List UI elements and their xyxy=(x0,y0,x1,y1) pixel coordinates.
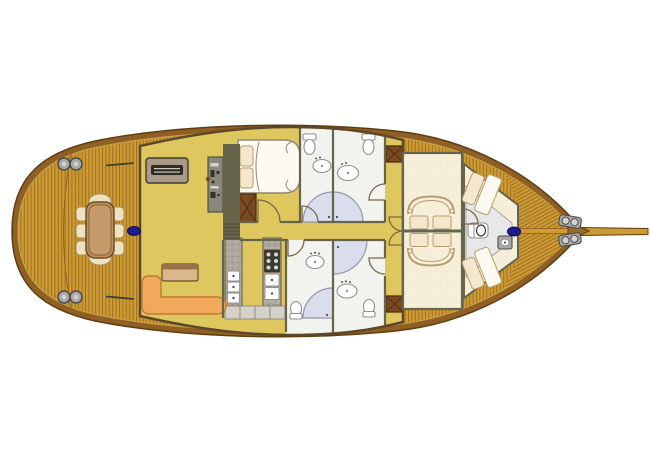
faucet-dot xyxy=(310,253,312,255)
footboard-scroll xyxy=(408,249,412,253)
toilet-bottom-left xyxy=(290,302,302,320)
bulkhead-column xyxy=(223,144,240,240)
deckhouse-interior xyxy=(140,125,403,336)
galley-base-cabinets xyxy=(225,306,285,319)
toilet-bowl xyxy=(477,225,486,236)
console-mark xyxy=(211,170,215,177)
console-dial xyxy=(217,194,220,197)
sink-drain xyxy=(314,261,316,263)
winch-center xyxy=(62,162,67,167)
fore-cabins xyxy=(403,153,462,309)
burner-knob xyxy=(267,253,271,257)
cabinet-top-band xyxy=(162,264,198,270)
salon-sideboard xyxy=(146,158,188,183)
burner-knob xyxy=(267,266,271,270)
drawer-knob xyxy=(232,275,234,277)
base-cabinet xyxy=(255,306,270,319)
crew-toilet xyxy=(468,223,488,238)
pillow xyxy=(240,168,253,188)
shower-door-knob xyxy=(336,216,338,218)
toilet-bottom-right xyxy=(363,300,375,318)
burner-knob xyxy=(267,259,271,263)
console-mark xyxy=(211,192,216,198)
console-mark xyxy=(211,163,219,167)
drawer-knob xyxy=(232,297,234,299)
toilet-bowl xyxy=(304,140,315,155)
toilet-tank xyxy=(363,312,375,318)
vent-slat xyxy=(154,172,180,173)
shower-door-knob xyxy=(326,314,328,316)
bowsprit xyxy=(581,228,648,236)
faucet-dot xyxy=(315,158,317,160)
winch-center xyxy=(74,162,79,167)
deck-plan-stage xyxy=(0,0,650,459)
midship-wardrobe xyxy=(238,194,256,222)
shower-door-knob xyxy=(337,246,339,248)
faucet-dot xyxy=(318,253,320,255)
winch-center xyxy=(74,295,79,300)
salon-cabinet xyxy=(162,264,198,281)
drawer-knob xyxy=(232,286,234,288)
pillow xyxy=(410,216,428,229)
corridor-wardrobe-top xyxy=(386,146,403,162)
footboard-scroll xyxy=(450,209,454,213)
sink-drain xyxy=(504,242,506,244)
faucet-dot xyxy=(314,252,316,254)
pillow xyxy=(410,234,428,247)
sink-drain xyxy=(346,290,348,292)
footboard-scroll xyxy=(450,249,454,253)
console-mark xyxy=(217,171,220,174)
aft-mast xyxy=(128,227,141,236)
faucet-dot xyxy=(341,163,343,165)
midship-cabin-bed xyxy=(238,140,300,193)
console-dial xyxy=(212,181,215,184)
burner-knob xyxy=(274,253,278,257)
burner-knob xyxy=(274,259,278,263)
toilet-bowl xyxy=(363,140,374,155)
console-knob xyxy=(206,177,210,181)
crew-sink xyxy=(498,236,512,249)
toilet-top-left xyxy=(303,134,316,155)
bathroom-floor-bottom-left xyxy=(286,240,333,336)
sink-drain xyxy=(347,172,349,174)
toilet-top-right xyxy=(362,134,375,155)
base-cabinet xyxy=(225,306,240,319)
vent-slat xyxy=(154,168,180,169)
console-mark xyxy=(211,186,219,189)
drawer-knob xyxy=(271,279,273,281)
winch-center xyxy=(62,295,67,300)
fore-mast xyxy=(508,227,521,236)
sink-drain xyxy=(321,165,323,167)
pillow xyxy=(240,146,253,166)
sideboard-vent xyxy=(151,165,183,175)
footboard-scroll xyxy=(408,209,412,213)
stove xyxy=(265,250,280,272)
burner-knob xyxy=(274,266,278,270)
shower-door-knob xyxy=(328,216,330,218)
faucet-dot xyxy=(345,280,347,282)
base-cabinet xyxy=(240,306,255,319)
corridor-wardrobe-bottom xyxy=(386,296,403,312)
faucet-dot xyxy=(345,162,347,164)
faucet-dot xyxy=(341,281,343,283)
pillow xyxy=(433,234,451,247)
toilet-tank xyxy=(290,314,302,320)
faucet-dot xyxy=(349,281,351,283)
nav-console xyxy=(206,157,223,212)
base-cabinet xyxy=(270,306,285,319)
faucet-dot xyxy=(319,157,321,159)
yacht-deck-plan xyxy=(0,0,650,459)
drawer-knob xyxy=(271,292,273,294)
dining-table-inner xyxy=(89,205,111,255)
pillow xyxy=(433,216,451,229)
